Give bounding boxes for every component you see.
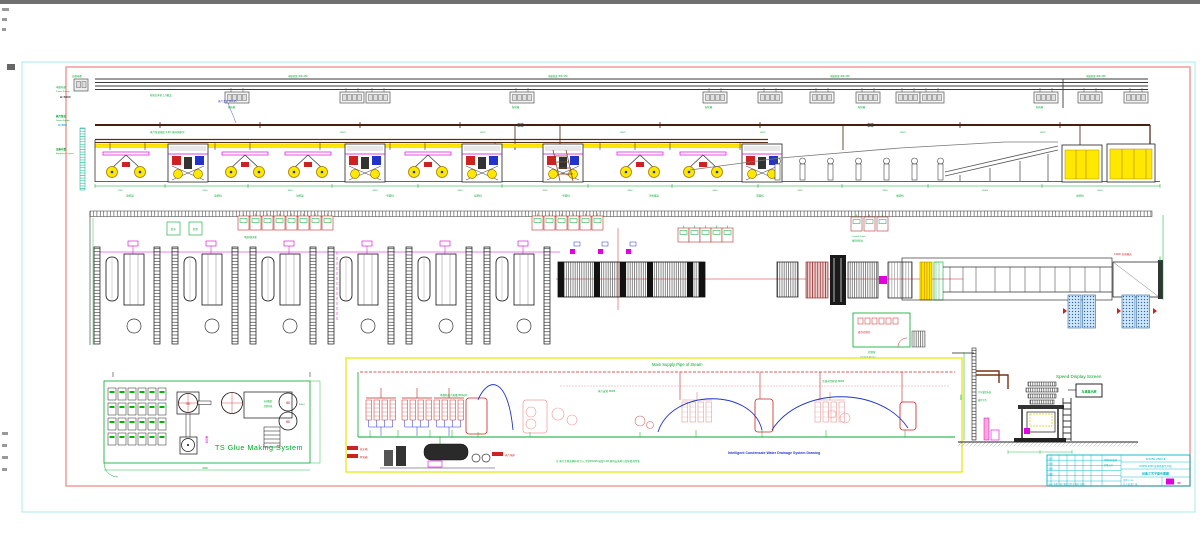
title-block: WJ250-2500-Ⅱ WJ250-2500 瓦楞纸板生产线 设备工艺平面布置… bbox=[1047, 455, 1190, 486]
cable-note: 桥架沿天桥上方敷设 bbox=[150, 93, 172, 97]
distribution-box bbox=[1078, 88, 1102, 103]
piping-title: Main Supply Pipe of Steam bbox=[652, 362, 703, 367]
glue-pump: 输胶泵 bbox=[180, 436, 209, 454]
margin-row-labels: 电缆桥架 Power Supply H=6000 蒸汽管道 Steam Supp… bbox=[56, 85, 74, 155]
glue-box-1-label: 胶水 bbox=[171, 227, 177, 231]
access-ladder bbox=[1063, 398, 1071, 441]
splicer-station bbox=[617, 152, 663, 178]
single-facer-machine bbox=[168, 144, 208, 182]
company-line-2: 有限公司 bbox=[1104, 463, 1113, 467]
boiler-assembly: 软水箱 除氧器 蒸汽锅炉 bbox=[347, 437, 516, 468]
single-facer-machine bbox=[345, 144, 385, 182]
steam-elev: H=4500 bbox=[58, 124, 67, 127]
cabinet-row-label: 单面机配电柜 bbox=[244, 235, 258, 239]
display-board-text: 车速显示屏 bbox=[1081, 389, 1096, 394]
dim-label: 6500 bbox=[373, 190, 379, 192]
glue-storage-tanks: 储胶 储胶 8000L bbox=[279, 393, 306, 430]
conveyor-post bbox=[856, 158, 862, 180]
dim-label: 8000 bbox=[1098, 190, 1104, 192]
conveyor-post bbox=[828, 158, 834, 180]
piping-subtitle: Intelligent Condensate Water Drainage Sy… bbox=[728, 451, 820, 455]
station-label: 单面机 bbox=[386, 194, 394, 198]
left-margin-marks bbox=[2, 8, 9, 471]
distribution-box bbox=[810, 88, 834, 103]
splicer-station bbox=[405, 152, 451, 178]
splicer-station bbox=[680, 152, 726, 178]
distribution-box bbox=[920, 88, 944, 103]
steam-dn-label: DN25 bbox=[620, 132, 626, 134]
cabinet-row-1: 单面机配电柜 bbox=[238, 214, 333, 240]
power-label-cn: 电缆桥架 bbox=[56, 85, 67, 89]
plan-right-dim: 4500 bbox=[1159, 256, 1162, 262]
height-dim: 3500 bbox=[960, 394, 963, 400]
flow-arrow bbox=[1153, 308, 1157, 314]
distribution-box bbox=[896, 88, 920, 103]
conveyor-post bbox=[912, 158, 918, 180]
glue-system-title: TS Glue Making System bbox=[215, 443, 303, 452]
dim-label: 4000 bbox=[713, 190, 719, 192]
flash-tank bbox=[466, 398, 487, 434]
flow-arrow bbox=[1063, 308, 1067, 314]
pump-label: 输胶泵 bbox=[205, 436, 209, 444]
wall-note-1: 行车梁底标高 bbox=[978, 390, 992, 394]
storage-tank-label: 储胶 bbox=[286, 401, 291, 405]
steam-dn-label: DN25 bbox=[1040, 132, 1046, 134]
glue-machine bbox=[462, 144, 502, 182]
tray-label: 电缆桥架 300×150 bbox=[548, 74, 568, 78]
conveyor-post bbox=[938, 158, 944, 180]
machine-cross-section bbox=[1014, 382, 1066, 442]
logo-text: JC bbox=[1177, 481, 1182, 485]
dim-label: 1700 bbox=[118, 190, 124, 192]
glue-making-system: 2600 拌胶 自动配胶 控制系统 bbox=[104, 372, 320, 477]
station-label: 接纸机 bbox=[474, 194, 482, 198]
double-facer-band bbox=[558, 242, 705, 297]
distribution-box bbox=[510, 88, 534, 103]
branch-note: 蒸汽支管 DN65 bbox=[598, 389, 616, 393]
box-label: 配电箱 bbox=[1036, 105, 1044, 109]
platform-label-2: 控制系统 bbox=[264, 404, 274, 408]
plan-wall-bar bbox=[90, 211, 1152, 217]
main-box-label: 总配电柜 bbox=[72, 74, 83, 78]
elevation-dim-line: 1700 6500 4500 6500 4500 6500 9000 4000 … bbox=[95, 184, 1160, 198]
heat-exchanger-group bbox=[366, 388, 396, 436]
tray-label: 电缆桥架 300×150 bbox=[288, 74, 308, 78]
stacker-1 bbox=[1062, 145, 1102, 182]
power-elev: H=6000 bbox=[60, 95, 71, 99]
box-label: 配电箱 bbox=[705, 105, 713, 109]
conveyor-post bbox=[884, 158, 890, 180]
window-top-bar bbox=[0, 0, 1200, 4]
cabinet-row-3 bbox=[678, 226, 733, 243]
dim-label: 6500 bbox=[543, 190, 549, 192]
company-line-1: 纸箱机械设备 bbox=[1104, 458, 1118, 462]
speed-display-board: 车速显示屏 bbox=[1068, 384, 1102, 397]
building-wall bbox=[972, 348, 976, 440]
glue-control-platform: 自动配胶 控制系统 bbox=[244, 392, 292, 418]
hx-note: 单面机蒸汽耗量 800kg/h bbox=[440, 393, 468, 397]
glue-mixer: 拌胶 bbox=[177, 392, 199, 414]
station-label: 横切机 bbox=[896, 194, 904, 198]
station-label: 接纸机 bbox=[214, 194, 222, 198]
control-panel-label-1: Control Panel bbox=[852, 235, 866, 238]
steam-dn-label: DN25 bbox=[760, 132, 766, 134]
drawing-svg: 电缆桥架 Power Supply H=6000 蒸汽管道 Steam Supp… bbox=[0, 0, 1200, 557]
tray-label: 电缆桥架 300×150 bbox=[830, 74, 850, 78]
distribution-box bbox=[703, 88, 727, 103]
dim-label: 6500 bbox=[203, 190, 209, 192]
equip-label-cn: 设备布置 bbox=[56, 147, 67, 151]
distribution-box bbox=[758, 88, 782, 103]
mill-roll-stand bbox=[406, 241, 472, 344]
power-label-en: Power Supply bbox=[56, 90, 70, 93]
mill-roll-stand bbox=[94, 241, 160, 344]
mill-roll-stand bbox=[484, 241, 550, 344]
mill-roll-stand bbox=[172, 241, 238, 344]
piping-note: 注:蒸汽主管由锅炉房引入,主管DN125,坡度0.3%,现场安装时以实际情况为准 bbox=[556, 459, 640, 463]
control-room: 操作控制台 控制室 Control Room bbox=[853, 313, 925, 359]
takeoff-conveyor: 14000 自动输送 bbox=[902, 252, 1163, 300]
distribution-box bbox=[856, 88, 880, 103]
steam-label-cn: 蒸汽管道 bbox=[56, 114, 67, 118]
magenta-box bbox=[991, 430, 999, 440]
platform-label-1: 自动配胶 bbox=[264, 399, 274, 403]
glue-box-2-label: 胶泵 bbox=[193, 227, 199, 231]
project-name: WJ250-2500 瓦楞纸板生产线 bbox=[1139, 464, 1172, 468]
glue-main-tank bbox=[221, 392, 243, 414]
steam-piping-diagram: Main Supply Pipe of Steam 单面机蒸汽耗量 800kg/… bbox=[346, 358, 962, 472]
dim-label: 4500 bbox=[288, 190, 294, 192]
station-label: 堆码机 bbox=[1076, 194, 1084, 198]
flash-tank bbox=[755, 399, 773, 432]
speed-section-title: Speed Display Screen bbox=[1056, 374, 1102, 379]
steam-dn-label: DN25 bbox=[340, 132, 346, 134]
crane-rail-pipe bbox=[976, 375, 1008, 389]
magenta-column bbox=[984, 418, 989, 440]
condensate-tank bbox=[523, 400, 547, 433]
control-room-interior-label: 操作控制台 bbox=[858, 330, 871, 334]
heat-exchanger-group bbox=[402, 388, 432, 436]
station-label: 原纸架 bbox=[296, 194, 304, 198]
distribution-box bbox=[1124, 88, 1148, 103]
steam-main-label: 蒸汽主管 DN125 bbox=[218, 99, 237, 103]
tray-label: 电缆桥架 300×150 bbox=[1086, 74, 1106, 78]
flash-tank bbox=[900, 402, 916, 430]
control-room-cn: 控制室 bbox=[868, 350, 876, 354]
stacker-2 bbox=[1107, 144, 1155, 182]
heat-exchanger-group-light bbox=[682, 392, 712, 422]
cabinet-row-4: Control Panel 操作按钮站 bbox=[851, 215, 888, 243]
speed-display-section: 3500 行车梁底标高 操作平台 车速显示屏 Speed Display Scr… bbox=[952, 348, 1138, 454]
dim-label: 9000 bbox=[628, 190, 634, 192]
sheet-title: 设备工艺平面布置图 bbox=[1142, 471, 1169, 476]
dim-label: 14000 bbox=[982, 190, 989, 192]
floor-hatch bbox=[958, 443, 1138, 447]
sheet-count: 共 1 张 第 1 张 bbox=[1123, 482, 1138, 486]
conveyor-post bbox=[800, 158, 806, 180]
deaerator-label: 除氧器 bbox=[360, 455, 368, 459]
cable-tray-run: 总配电柜 电缆桥架 300×150 电缆桥架 300×150 电缆桥架 300×… bbox=[72, 74, 1148, 109]
flow-arrow bbox=[1117, 308, 1121, 314]
distribution-box bbox=[1034, 88, 1058, 103]
dim-label: 9500 bbox=[883, 190, 889, 192]
pallet-stack bbox=[1122, 295, 1150, 328]
drawing-number: WJ250-2500-Ⅱ bbox=[1146, 457, 1166, 461]
wall-note-2: 操作平台 bbox=[978, 398, 988, 402]
soft-tank-label: 软水箱 bbox=[360, 447, 368, 451]
scale-label: 比例 1:100 bbox=[1123, 478, 1134, 482]
equip-label-en: Equipment Layout bbox=[56, 152, 74, 155]
steam-note: 蒸汽管道坡度 0.3% 坡向锅炉房 bbox=[150, 130, 185, 134]
starch-tank-grid bbox=[108, 388, 166, 445]
storage-volume: 8000L bbox=[299, 404, 306, 406]
return-note: 冷凝水回收管 DN50 bbox=[822, 379, 845, 383]
splicer-station bbox=[285, 152, 331, 178]
company-logo: JC bbox=[1166, 479, 1182, 486]
plan-view: 胶水 胶泵 单面机配电柜 Control Panel 操作按钮站 bbox=[90, 211, 1163, 359]
crane-rail-pipe bbox=[976, 371, 999, 383]
steam-dn-label: DN25 bbox=[900, 132, 906, 134]
elevation-view: 1700 6500 4500 6500 4500 6500 9000 4000 … bbox=[95, 140, 1160, 198]
conveyor-label: 14000 自动输送 bbox=[1114, 252, 1132, 256]
wet-end-cluster bbox=[806, 255, 943, 305]
box-label: 配电箱 bbox=[858, 105, 866, 109]
dim-label: 3500 bbox=[798, 190, 804, 192]
preheater-block bbox=[777, 262, 798, 297]
splicer-station bbox=[103, 152, 149, 178]
station-label: 双面机 bbox=[756, 194, 764, 198]
mill-roll-stand bbox=[250, 241, 316, 344]
box-label: 配电箱 bbox=[512, 105, 520, 109]
double-facer-machine bbox=[543, 144, 583, 182]
wall-column bbox=[80, 128, 85, 190]
steam-label-en: Steam Supply bbox=[56, 119, 71, 122]
steam-dn-label: DN25 bbox=[480, 132, 486, 134]
station-label: 天桥输送 bbox=[649, 194, 660, 198]
control-panel-label-2: 操作按钮站 bbox=[852, 239, 864, 243]
glue-dim-label: 2600 bbox=[202, 467, 208, 470]
mixer-label: 拌胶 bbox=[185, 402, 191, 406]
station-label: 单面机 bbox=[562, 194, 570, 198]
storage-tank-label: 储胶 bbox=[286, 420, 291, 424]
distribution-box bbox=[366, 88, 390, 103]
dim-label: 4500 bbox=[458, 190, 464, 192]
condensate-arc bbox=[478, 385, 513, 430]
splicer-station bbox=[222, 152, 268, 178]
cad-drawing-sheet: 电缆桥架 Power Supply H=6000 蒸汽管道 Steam Supp… bbox=[0, 0, 1200, 557]
distribution-box bbox=[340, 88, 364, 103]
station-label: 原纸架 bbox=[126, 194, 134, 198]
mill-roll-stand bbox=[328, 241, 394, 344]
boiler-label: 蒸汽锅炉 bbox=[505, 453, 516, 457]
